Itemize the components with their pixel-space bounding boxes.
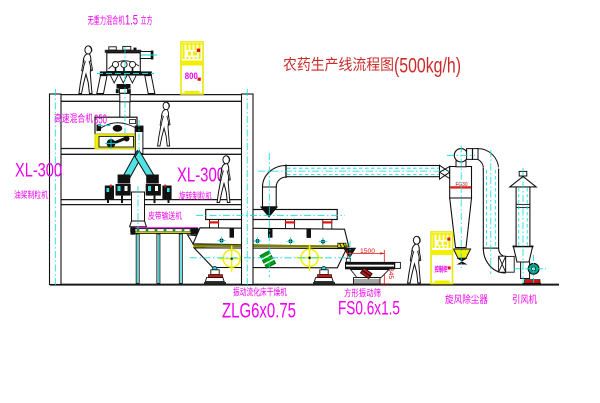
svg-text:旋转制粒机: 旋转制粒机: [179, 190, 212, 201]
svg-text:高速混合机: 高速混合机: [54, 112, 93, 125]
svg-text:油桨制粒机: 油桨制粒机: [14, 189, 48, 200]
svg-text:旋风除尘器: 旋风除尘器: [445, 293, 488, 306]
svg-text:1500: 1500: [360, 248, 375, 255]
svg-text:引风机: 引风机: [512, 293, 537, 306]
svg-text:(500kg/h): (500kg/h): [394, 55, 461, 78]
svg-text:农药生产线流程图: 农药生产线流程图: [283, 57, 394, 74]
svg-text:FS0.6x1.5: FS0.6x1.5: [338, 298, 400, 320]
svg-text:ZLG6x0.75: ZLG6x0.75: [222, 300, 296, 323]
svg-text:振动流化床干燥机: 振动流化床干燥机: [233, 287, 287, 299]
svg-text:皮带输送机: 皮带输送机: [148, 210, 182, 221]
svg-text:立方: 立方: [141, 14, 153, 27]
svg-text:350: 350: [94, 112, 107, 127]
svg-text:控制柜: 控制柜: [435, 265, 448, 274]
svg-text:800: 800: [185, 71, 198, 81]
svg-text:无重力混合机: 无重力混合机: [88, 14, 125, 27]
svg-text:XL-300: XL-300: [177, 165, 225, 187]
svg-text:1.5: 1.5: [125, 13, 138, 28]
svg-text:XL-300: XL-300: [15, 161, 62, 182]
